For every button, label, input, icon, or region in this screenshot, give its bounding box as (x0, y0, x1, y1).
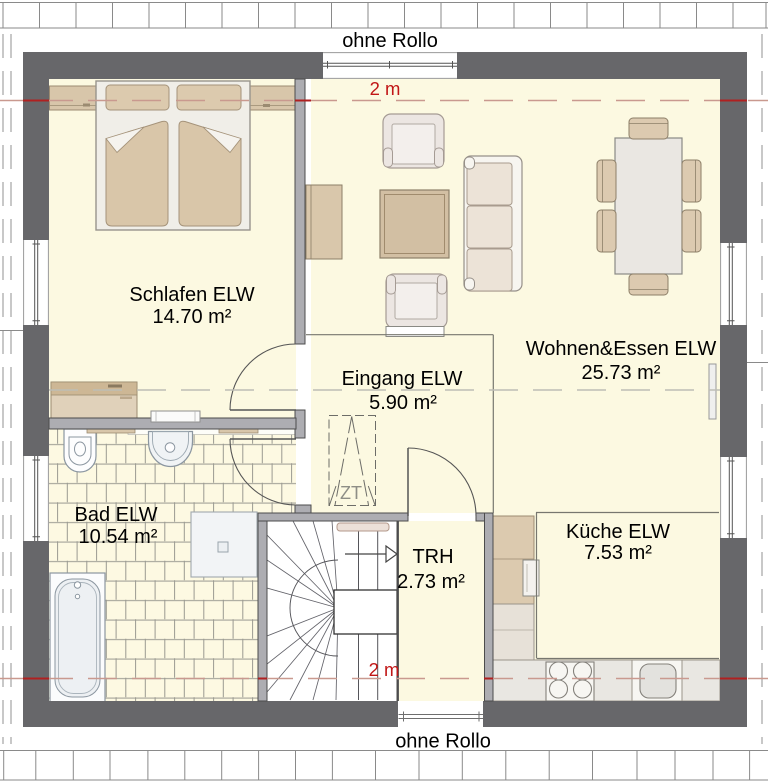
svg-text:Schlafen ELW: Schlafen ELW (129, 284, 254, 306)
svg-text:2 m: 2 m (370, 78, 401, 99)
svg-text:ZT: ZT (340, 483, 362, 503)
svg-text:Eingang ELW: Eingang ELW (342, 368, 463, 390)
svg-text:ohne Rollo: ohne Rollo (395, 731, 491, 753)
svg-text:TRH: TRH (412, 546, 453, 568)
svg-text:5.90 m²: 5.90 m² (369, 392, 437, 414)
svg-text:ohne Rollo: ohne Rollo (342, 30, 438, 52)
svg-text:2.73 m²: 2.73 m² (397, 571, 465, 593)
svg-text:7.53 m²: 7.53 m² (584, 542, 652, 564)
svg-text:2 m: 2 m (369, 659, 400, 680)
svg-text:25.73 m²: 25.73 m² (582, 362, 661, 384)
svg-text:Bad ELW: Bad ELW (75, 504, 158, 526)
svg-text:Wohnen&Essen ELW: Wohnen&Essen ELW (526, 338, 717, 360)
svg-text:10.54 m²: 10.54 m² (79, 526, 158, 548)
svg-text:Küche ELW: Küche ELW (566, 521, 670, 543)
svg-text:14.70 m²: 14.70 m² (153, 306, 232, 328)
